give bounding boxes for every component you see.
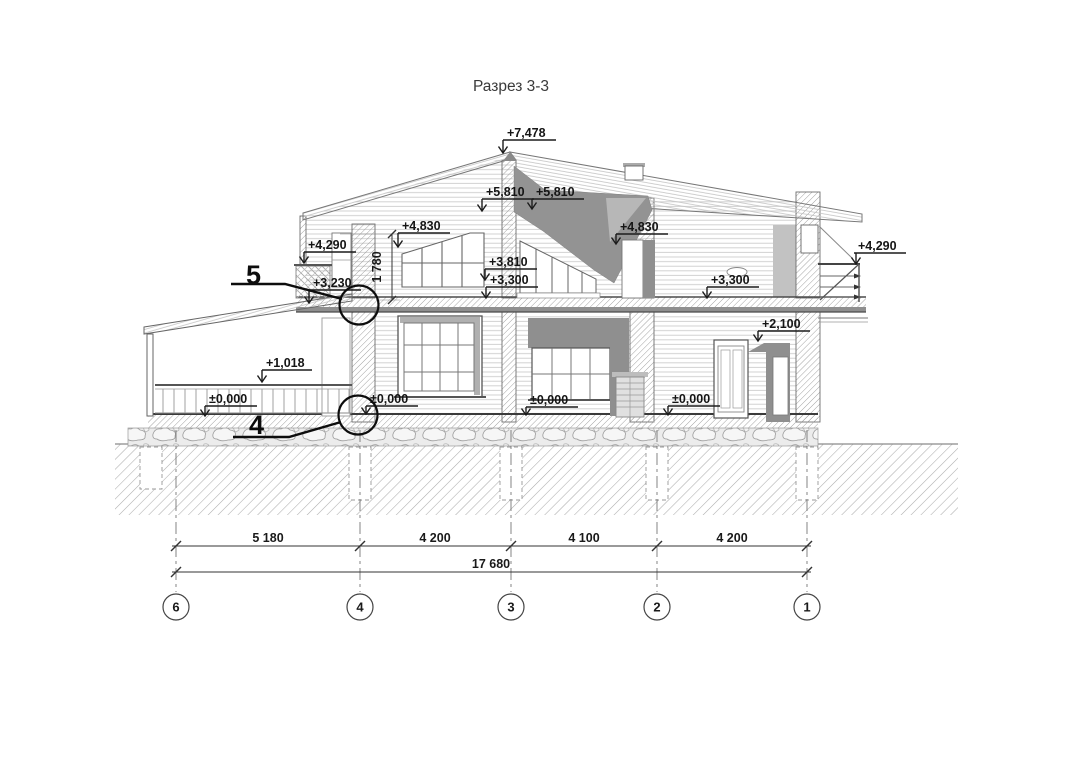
svg-text:+5,810: +5,810 <box>536 185 575 199</box>
dimension-row: 5 180 4 200 4 100 4 200 17 680 <box>171 531 812 577</box>
upper-right-shade <box>773 225 796 297</box>
svg-text:+3,230: +3,230 <box>313 276 352 290</box>
mid-window-valance <box>528 318 612 348</box>
callout-label-lower: 4 <box>249 410 264 440</box>
elevation-porch-1018: +1,018 <box>258 356 313 382</box>
first-floor-left-window <box>394 316 486 397</box>
stone-foundation-band <box>128 428 818 446</box>
balcony-rails <box>820 276 854 297</box>
corner-post-shadow <box>643 240 655 298</box>
porch-back-door <box>322 318 350 416</box>
svg-text:+7,478: +7,478 <box>507 126 546 140</box>
axis-bubble-2: 2 <box>653 600 660 615</box>
right-balcony <box>818 264 868 322</box>
dim-seg-6-4: 5 180 <box>252 531 283 545</box>
axis-bubble-4: 4 <box>356 600 364 615</box>
svg-text:±0,000: ±0,000 <box>672 392 710 406</box>
svg-text:+5,810: +5,810 <box>486 185 525 199</box>
second-floor-slab <box>296 297 866 312</box>
svg-text:+3,300: +3,300 <box>711 273 750 287</box>
svg-text:+3,300: +3,300 <box>490 273 529 287</box>
porch-post <box>147 334 153 416</box>
svg-text:+4,290: +4,290 <box>858 239 897 253</box>
brick-stove <box>612 372 648 417</box>
right-wall-niche <box>801 225 818 253</box>
dim-seg-2-1: 4 200 <box>716 531 747 545</box>
svg-text:±0,000: ±0,000 <box>370 392 408 406</box>
dim-total: 17 680 <box>472 557 510 571</box>
stair-stringer <box>820 265 858 300</box>
dim-seg-3-2: 4 100 <box>568 531 599 545</box>
svg-text:±0,000: ±0,000 <box>530 393 568 407</box>
axis-bubble-6: 6 <box>172 600 179 615</box>
chimney <box>625 166 643 180</box>
elevation-right-4290: +4,290 <box>852 239 907 264</box>
svg-text:+4,290: +4,290 <box>308 238 347 252</box>
elevation-ridge: +7,478 <box>499 126 557 153</box>
svg-text:+3,810: +3,810 <box>489 255 528 269</box>
section-drawing: 5 180 4 200 4 100 4 200 17 680 6 4 3 2 1… <box>0 0 1086 759</box>
dim-seg-4-3: 4 200 <box>419 531 450 545</box>
vertical-dim-label: 1 780 <box>370 251 384 282</box>
svg-text:±0,000: ±0,000 <box>209 392 247 406</box>
axis3-wall-lower <box>502 312 516 422</box>
ground-hatch <box>115 444 958 515</box>
svg-text:+1,018: +1,018 <box>266 356 305 370</box>
axis-bubble-3: 3 <box>507 600 514 615</box>
axis-bubbles: 6 4 3 2 1 <box>163 594 820 620</box>
svg-text:+2,100: +2,100 <box>762 317 801 331</box>
rail-ends <box>854 274 861 300</box>
svg-text:+4,830: +4,830 <box>402 219 441 233</box>
architectural-section-sheet: 5 180 4 200 4 100 4 200 17 680 6 4 3 2 1… <box>0 0 1086 759</box>
eave-bracket <box>820 227 852 258</box>
corner-post <box>622 240 643 298</box>
callout-label-upper: 5 <box>246 260 261 290</box>
axis-bubble-1: 1 <box>803 600 810 615</box>
ground <box>115 444 958 515</box>
porch-roof <box>144 294 352 334</box>
drawing-title: Разрез 3-3 <box>473 78 549 95</box>
svg-text:+4,830: +4,830 <box>620 220 659 234</box>
